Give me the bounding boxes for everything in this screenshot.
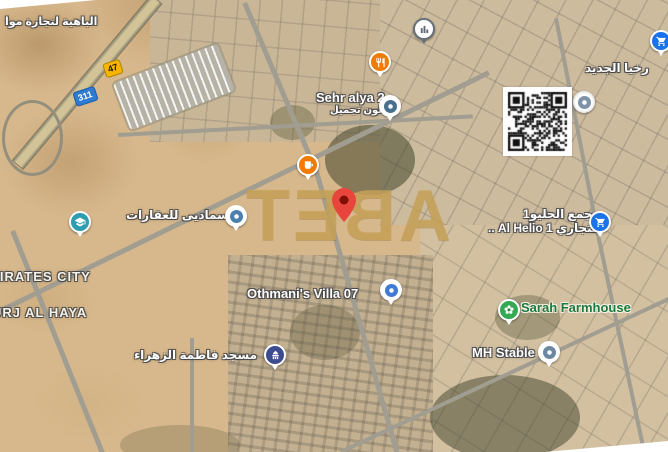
label-fatima-alzahra-mosque[interactable]: مسجد فاطمة الزهراء: [134, 348, 257, 362]
othmani-villa-pin[interactable]: [380, 279, 402, 301]
covered-poi-marker[interactable]: [573, 91, 595, 113]
marker-tail: [505, 319, 513, 325]
marker-tail: [657, 50, 665, 56]
map-screenshot: 47 311 الباهية لتجارة مواSehr alya 2صالو…: [0, 0, 668, 452]
poi-dot-icon: [384, 100, 397, 113]
marker-tail: [271, 364, 279, 370]
cart-icon: [595, 217, 606, 228]
label-sarah-farmhouse[interactable]: Sarah Farmhouse: [521, 300, 631, 315]
mh-stable-pin[interactable]: [538, 341, 560, 363]
poi-dot-icon: [578, 96, 591, 109]
restaurant-icon: [375, 57, 386, 68]
label-samadi-real-estate[interactable]: سماديى للعقارات: [126, 208, 229, 222]
marker-tail: [545, 361, 553, 367]
vegetation-patch: [325, 125, 415, 195]
selected-location-pin[interactable]: [331, 188, 357, 227]
vegetation-patch: [430, 375, 580, 452]
label-mh-stable[interactable]: MH Stable: [472, 345, 535, 360]
poi-dot-icon: [385, 284, 398, 297]
marker-tail: [596, 231, 604, 237]
label-emirates-city[interactable]: MIRATES CITY: [0, 269, 91, 284]
mosque-icon: [270, 350, 281, 361]
marker-tail: [387, 299, 395, 305]
school-marker[interactable]: [69, 211, 91, 233]
building-poi-marker[interactable]: [413, 18, 435, 40]
label-al-helio-1-commercial[interactable]: التجاري Al Helio 1 ..: [488, 221, 601, 235]
marker-tail: [420, 38, 428, 44]
supermarket-marker-top-right[interactable]: [650, 30, 668, 52]
marker-tail: [376, 71, 384, 77]
cart-icon: [656, 36, 667, 47]
marker-tail: [304, 174, 312, 180]
vegetation-patch: [290, 305, 360, 360]
mosque-marker[interactable]: [264, 344, 286, 366]
sehr-alya-pin[interactable]: [379, 95, 401, 117]
school-icon: [74, 216, 86, 228]
building-icon: [419, 24, 430, 35]
marker-tail: [76, 231, 84, 237]
highway-ramp: [2, 100, 63, 176]
flower-icon: [503, 304, 515, 316]
label-othmanis-villa-07[interactable]: Othmani's Villa 07: [247, 286, 358, 301]
farmhouse-marker[interactable]: [498, 299, 520, 321]
label-al-bahia-trading[interactable]: الباهية لتجارة موا: [5, 15, 97, 28]
samadi-pin[interactable]: [225, 205, 247, 227]
marker-tail: [232, 225, 240, 231]
label-burj-al-haya[interactable]: URJ AL HAYA: [0, 305, 87, 320]
label-sehr-alya-2[interactable]: Sehr alya 2: [316, 90, 385, 105]
poi-dot-icon: [543, 346, 556, 359]
qr-code: [503, 87, 572, 156]
label-al-jadeed[interactable]: رخيا الجديد: [585, 61, 649, 75]
restaurant-marker[interactable]: [369, 51, 391, 73]
marker-tail: [386, 115, 394, 121]
satellite-map[interactable]: 47 311 الباهية لتجارة مواSehr alya 2صالو…: [0, 0, 668, 452]
cafe-icon: [303, 160, 314, 171]
poi-dot-icon: [230, 210, 243, 223]
cafe-marker[interactable]: [297, 154, 319, 176]
supermarket-marker-helio[interactable]: [589, 211, 611, 233]
